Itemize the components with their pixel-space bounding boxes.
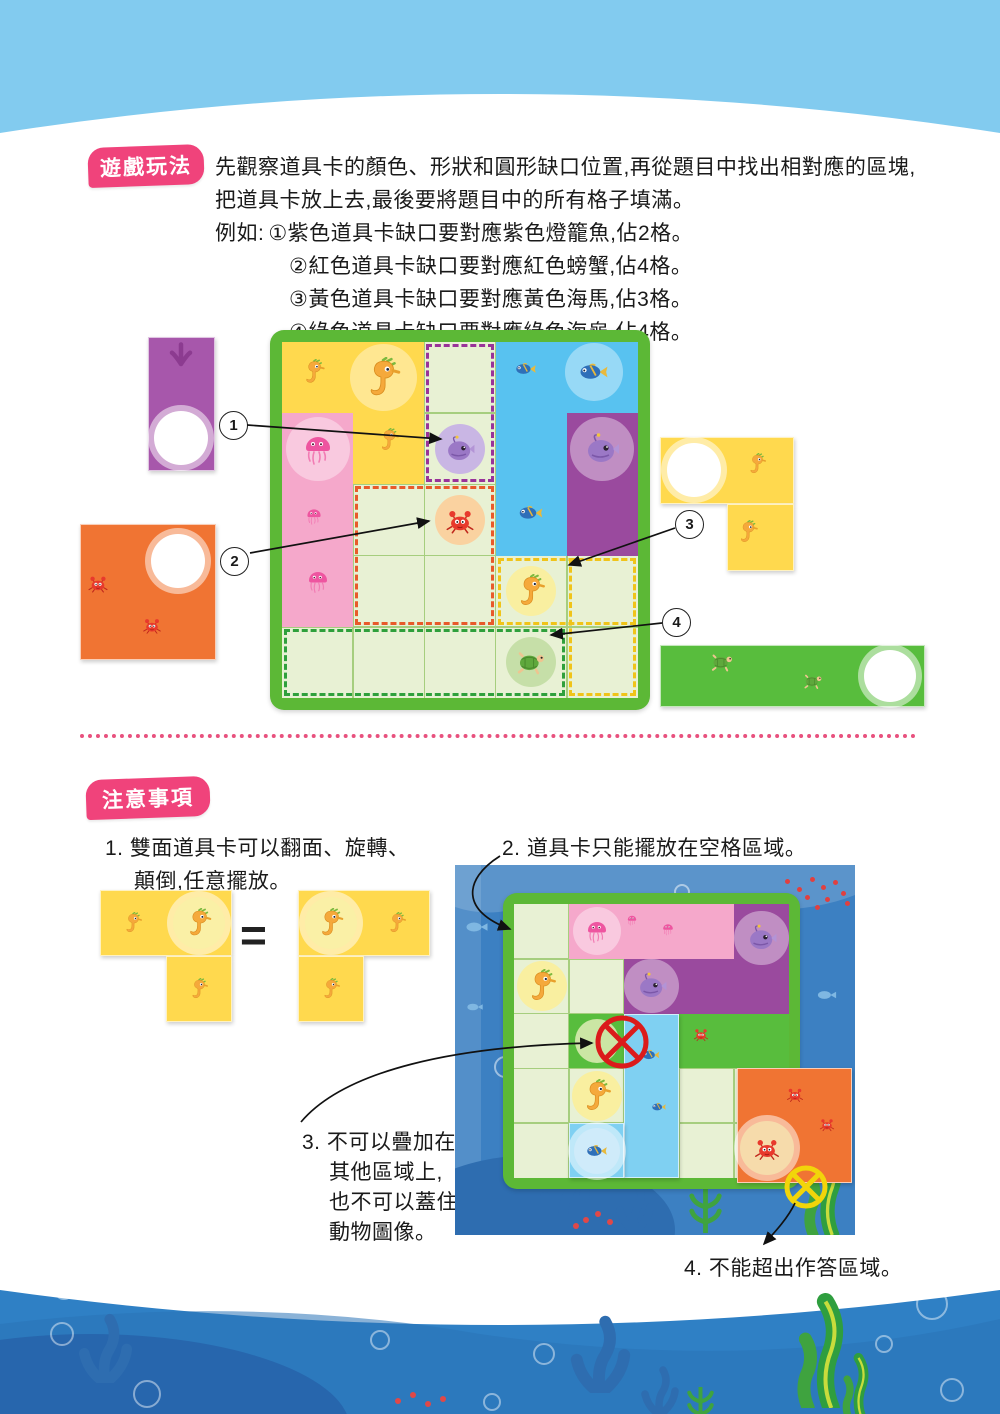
piece-label-3-text: 3: [685, 516, 693, 533]
note3-line1: 3. 不可以疊加在: [302, 1126, 456, 1159]
seahorse-icon: [514, 574, 548, 608]
underwater-scene: [455, 865, 855, 1235]
blue-fish-region-part2: [496, 413, 567, 555]
seahorse-icon: [188, 978, 210, 1000]
red-coral-dot: [805, 895, 810, 900]
purple-piece-card-hole: [154, 411, 208, 465]
red-coral-dot: [825, 897, 830, 902]
jellyfish-icon: [625, 913, 639, 927]
jellyfish-icon: [303, 505, 325, 527]
seahorse-icon: [377, 428, 401, 452]
red-coral-dot: [797, 887, 802, 892]
seahorse-icon: [746, 453, 768, 475]
crab-icon: [818, 1115, 836, 1133]
jellyfish-icon: [582, 916, 612, 946]
red-coral-dot: [595, 1211, 601, 1217]
red-coral-dot: [607, 1219, 613, 1225]
turtle-icon: [802, 670, 824, 692]
seahorse-icon: [301, 359, 327, 385]
piece-label-4-text: 4: [672, 614, 680, 631]
red-coral-dot: [841, 891, 846, 896]
page: 遊戲玩法 先觀察道具卡的顏色、形狀和圓形缺口位置,再從題目中找出相對應的區塊, …: [0, 0, 1000, 1414]
yellow-target-outline-part2: [569, 558, 636, 696]
orange-piece-card-hole: [151, 534, 205, 588]
crab-icon: [443, 503, 477, 537]
anglerfish-icon: [745, 921, 779, 955]
seahorse-icon: [320, 978, 342, 1000]
seahorse-icon: [316, 908, 346, 938]
coral-icon: [166, 337, 196, 367]
note3-line3: 也不可以蓋住: [329, 1186, 458, 1219]
turtle-icon: [514, 645, 548, 679]
turtle-icon: [709, 649, 735, 675]
red-coral-dot: [815, 905, 820, 910]
seahorse-icon: [386, 912, 408, 934]
red-coral-dot: [785, 879, 790, 884]
silfish-icon: [464, 996, 486, 1018]
piece-label-4: 4: [662, 608, 691, 637]
red-coral-dot: [821, 885, 826, 890]
fish-icon: [516, 498, 546, 528]
red-coral-dot: [833, 880, 838, 885]
crab-icon: [785, 1084, 805, 1104]
piece-label-2: 2: [220, 547, 249, 576]
seahorse-icon: [184, 908, 214, 938]
crab-icon: [692, 1025, 710, 1043]
fish-icon: [513, 356, 539, 382]
red-coral-dot: [845, 901, 850, 906]
notes-badge: 注意事項: [85, 776, 210, 820]
illustration-layer: [0, 0, 1000, 1414]
note3-line4: 動物圖像。: [329, 1216, 437, 1249]
seahorse-icon: [736, 520, 760, 544]
notes-badge-label: 注意事項: [102, 781, 195, 814]
seahorse-icon: [580, 1079, 614, 1113]
red-coral-dot: [583, 1217, 589, 1223]
piece-label-3: 3: [675, 510, 704, 539]
out-of-area-error-x: [783, 1164, 829, 1210]
crab-icon: [141, 614, 163, 636]
crab-icon: [86, 571, 110, 595]
seahorse-icon: [525, 969, 559, 1003]
bottom-wave-band: [0, 1264, 1000, 1414]
red-coral-dot: [573, 1223, 579, 1229]
seahorse-icon: [122, 912, 144, 934]
piece-label-2-text: 2: [230, 553, 238, 570]
anglerfish-icon: [582, 429, 622, 469]
anglerfish-icon: [635, 969, 669, 1003]
note3-line2: 其他區域上,: [329, 1156, 443, 1189]
crab-icon: [752, 1133, 782, 1163]
equals-sign: =: [240, 908, 267, 962]
fish-icon: [650, 1098, 668, 1116]
main-board-grid: [282, 342, 638, 698]
yellow-piece-card-hole: [667, 443, 721, 497]
piece-label-1: 1: [219, 411, 248, 440]
seahorse-icon: [362, 357, 404, 399]
note1-line1: 1. 雙面道具卡可以翻面、旋轉、: [105, 832, 409, 865]
jellyfish-icon: [298, 429, 338, 469]
note2: 2. 道具卡只能擺放在空格區域。: [502, 832, 806, 865]
anglerfish-icon: [443, 432, 477, 466]
fish-icon: [584, 1138, 610, 1164]
jellyfish-icon: [303, 566, 333, 596]
silfish-icon: [814, 982, 840, 1008]
section-divider: [80, 734, 916, 738]
fish-icon: [576, 354, 612, 390]
piece-label-1-text: 1: [229, 417, 237, 434]
jellyfish-icon: [660, 921, 676, 937]
green-piece-card-hole: [864, 650, 916, 702]
silfish-icon: [462, 912, 492, 942]
main-board: [270, 330, 650, 710]
overlap-error-x: [594, 1014, 650, 1070]
red-coral-dot: [810, 877, 815, 882]
